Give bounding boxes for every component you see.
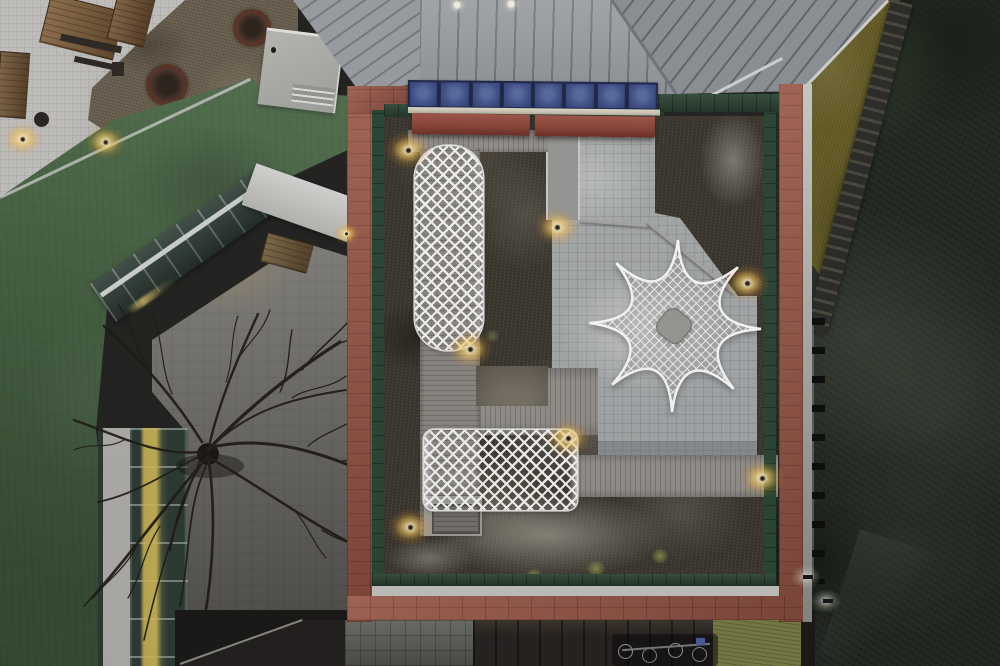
canopy-corner-light (332, 222, 360, 245)
roof-border-right (779, 84, 803, 622)
clerestory-panel-band (408, 80, 658, 111)
bench (112, 62, 124, 76)
blue-panel (440, 81, 470, 107)
garden-notch (476, 366, 548, 406)
awning-red-right (535, 115, 655, 138)
blue-panel (565, 83, 595, 109)
ground-pavers (345, 620, 473, 666)
fence-right (764, 110, 776, 576)
blue-panel (471, 82, 501, 108)
roof-border-bottom (347, 596, 803, 620)
lattice-star-pavilion (575, 228, 775, 428)
rooftop-lamp (453, 1, 462, 10)
bare-tree (40, 250, 400, 666)
perimeter-lamp (811, 589, 841, 613)
lichen-patch (700, 112, 766, 208)
blue-panel (502, 82, 532, 108)
planter-box (0, 51, 30, 119)
courtyard-path-light (447, 330, 493, 368)
bike-wheel (618, 644, 633, 659)
perimeter-lamp (791, 565, 821, 589)
blue-panel (596, 83, 626, 109)
gutter-line-bottom (372, 586, 779, 596)
shrub-tuft (652, 549, 668, 563)
blue-panel (627, 83, 657, 109)
scene (0, 0, 1000, 666)
blue-panel (409, 81, 439, 107)
fence-top-corner (658, 94, 779, 112)
tile-shadow-strip (598, 441, 757, 455)
awning-red-left (412, 113, 530, 136)
bike-wheel (692, 647, 707, 662)
perimeter-fence-posts (812, 318, 825, 584)
plaza-light (2, 122, 43, 156)
bicycle-rack (612, 634, 718, 666)
courtyard-path-light (385, 131, 431, 169)
fence-bottom (372, 574, 776, 586)
rooftop-lamp (507, 0, 516, 9)
courtyard-path-light (739, 459, 785, 497)
gutter-line-right (803, 84, 812, 622)
blue-panel (534, 82, 564, 108)
bike-tarp (696, 638, 705, 645)
courtyard-path-light (545, 419, 591, 457)
person-dot (271, 47, 276, 53)
courtyard-path-light (534, 208, 580, 246)
courtyard-path-light (724, 264, 770, 302)
bike-wheel (642, 648, 657, 663)
fence-left (372, 110, 384, 576)
access-ramp (546, 134, 580, 220)
courtyard-path-light (387, 508, 433, 546)
lattice-tunnel (415, 146, 483, 350)
roof-border-left (347, 86, 372, 622)
shrub (34, 112, 49, 127)
plaza-light (85, 125, 126, 159)
